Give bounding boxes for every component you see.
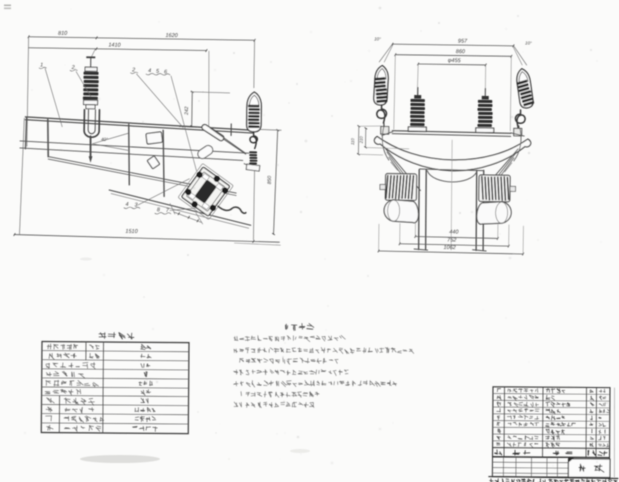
- svg-text:10°: 10°: [374, 36, 381, 41]
- svg-text:110: 110: [350, 138, 355, 145]
- svg-text:440: 440: [449, 229, 459, 235]
- svg-text:4: 4: [125, 202, 128, 208]
- svg-text:40°: 40°: [101, 137, 108, 142]
- svg-text:10°: 10°: [525, 41, 532, 46]
- svg-text:5: 5: [156, 69, 160, 75]
- svg-text:8: 8: [157, 207, 160, 213]
- svg-text:242: 242: [184, 106, 190, 116]
- svg-text:1410: 1410: [108, 42, 121, 48]
- svg-text:957: 957: [458, 39, 468, 45]
- svg-text:1510: 1510: [125, 229, 138, 235]
- svg-text:850: 850: [267, 176, 273, 185]
- svg-text:1: 1: [40, 62, 43, 68]
- svg-text:210: 210: [359, 136, 364, 145]
- svg-text:1620: 1620: [165, 33, 178, 39]
- svg-text:752: 752: [447, 237, 456, 243]
- svg-text:1062: 1062: [443, 245, 455, 251]
- svg-text:810: 810: [58, 31, 68, 37]
- svg-text:860: 860: [456, 49, 466, 55]
- svg-text:φ455: φ455: [448, 58, 462, 64]
- svg-text:4: 4: [148, 68, 151, 74]
